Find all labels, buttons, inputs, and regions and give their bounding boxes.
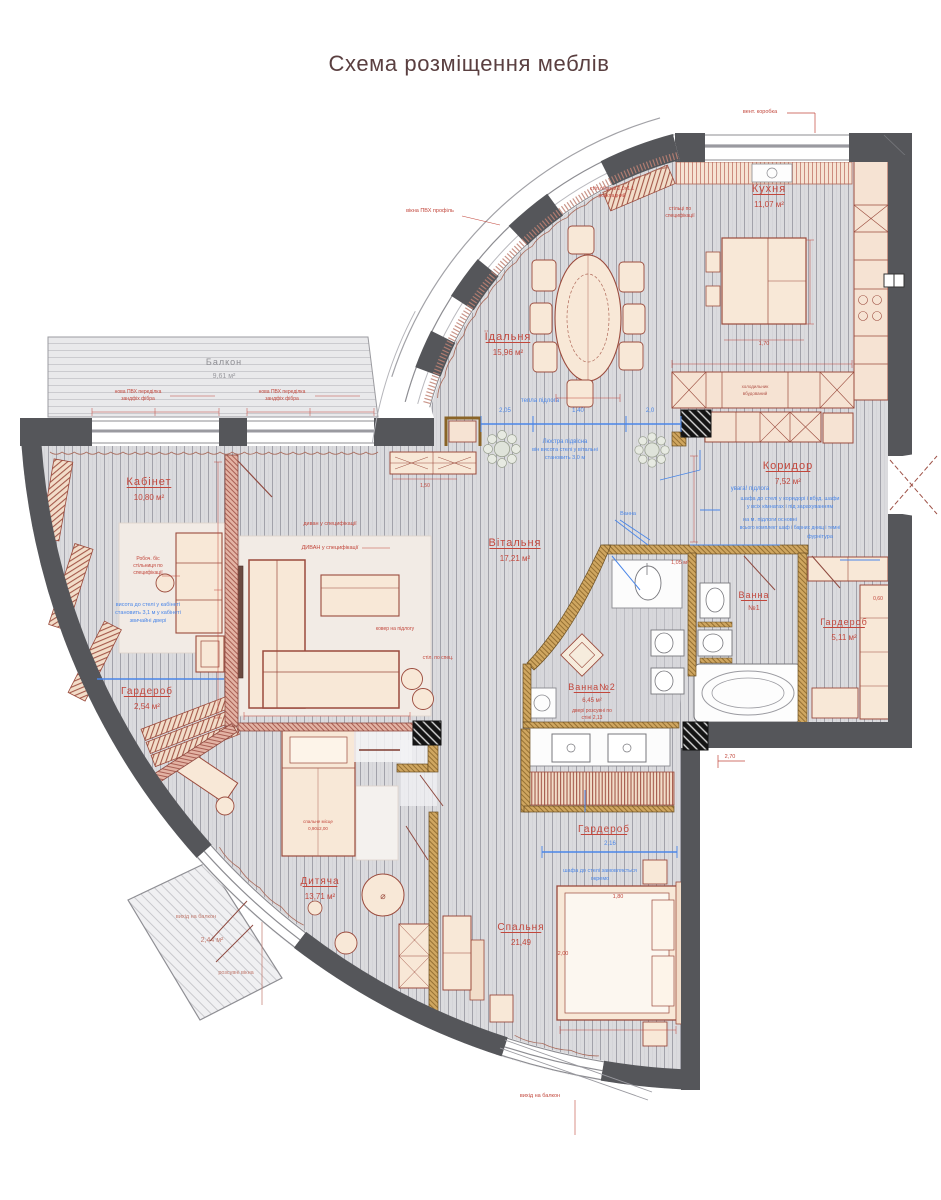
svg-text:холодильник: холодильник bbox=[742, 384, 769, 389]
svg-text:Їдальня: Їдальня bbox=[485, 331, 532, 343]
svg-text:0,60: 0,60 bbox=[873, 596, 883, 602]
svg-text:2,54 м²: 2,54 м² bbox=[134, 702, 160, 711]
svg-text:на м. підлоги основні: на м. підлоги основні bbox=[743, 517, 797, 523]
svg-text:Дитяча: Дитяча bbox=[300, 876, 339, 887]
svg-text:1,05 м²: 1,05 м² bbox=[671, 560, 689, 566]
svg-text:становить 3,1 м у кабінеті: становить 3,1 м у кабінеті bbox=[115, 610, 181, 616]
svg-text:Ванна№2: Ванна№2 bbox=[568, 682, 616, 692]
svg-text:2,16: 2,16 bbox=[604, 841, 616, 847]
svg-text:№1: №1 bbox=[748, 605, 760, 612]
svg-text:Гардероб: Гардероб bbox=[578, 823, 630, 835]
svg-text:увага! підлога: увага! підлога bbox=[731, 486, 770, 492]
svg-text:розкладний: розкладний bbox=[598, 192, 625, 199]
svg-text:1,40: 1,40 bbox=[572, 408, 584, 414]
svg-text:висота до стелі у кабінеті: висота до стелі у кабінеті bbox=[116, 602, 181, 608]
svg-text:1,70: 1,70 bbox=[759, 341, 770, 347]
svg-text:6,45 м²: 6,45 м² bbox=[582, 698, 601, 704]
svg-text:Ванна: Ванна bbox=[739, 590, 770, 600]
svg-text:Кабінет: Кабінет bbox=[126, 476, 171, 488]
svg-text:17,21 м²: 17,21 м² bbox=[500, 554, 531, 563]
svg-text:ковер на підлогу: ковер на підлогу bbox=[376, 626, 415, 632]
svg-text:стіні 2,13: стіні 2,13 bbox=[582, 715, 603, 721]
svg-text:стіл обідній 2,0х1,1: стіл обідній 2,0х1,1 bbox=[590, 185, 635, 192]
svg-text:специфікації: специфікації bbox=[665, 213, 695, 219]
svg-text:Спальня: Спальня bbox=[497, 922, 544, 933]
svg-text:він висота стелі у вітальні: він висота стелі у вітальні bbox=[532, 447, 598, 453]
svg-text:21,49: 21,49 bbox=[511, 938, 532, 947]
svg-text:⌀: ⌀ bbox=[380, 891, 386, 901]
svg-text:тепла підлога: тепла підлога bbox=[521, 398, 560, 404]
svg-text:нова ПВХ переділка: нова ПВХ переділка bbox=[115, 389, 162, 395]
svg-text:вент. коробка: вент. коробка bbox=[743, 109, 778, 115]
svg-text:шафа до стелі замовляється: шафа до стелі замовляється bbox=[563, 868, 637, 874]
svg-text:13,71 м²: 13,71 м² bbox=[305, 892, 336, 901]
svg-text:11,07 м²: 11,07 м² bbox=[754, 200, 784, 209]
svg-text:2,05: 2,05 bbox=[499, 408, 511, 414]
svg-text:звичайні двері: звичайні двері bbox=[130, 617, 167, 624]
svg-text:зандфіх фібра: зандфіх фібра bbox=[265, 396, 299, 402]
svg-text:Робоч. біс: Робоч. біс bbox=[136, 556, 160, 562]
svg-text:окремо: окремо bbox=[591, 876, 609, 882]
svg-text:стільниця по: стільниця по bbox=[133, 563, 163, 569]
svg-text:вікна ПВХ профіль: вікна ПВХ профіль bbox=[406, 208, 454, 214]
svg-text:всього комплект шаф і барних д: всього комплект шаф і барних днищ і темн… bbox=[740, 525, 841, 531]
svg-text:Схема розміщення меблів: Схема розміщення меблів bbox=[328, 51, 609, 76]
svg-text:Люстра підвісна: Люстра підвісна bbox=[543, 439, 588, 445]
svg-text:2,00: 2,00 bbox=[558, 951, 569, 957]
svg-text:0,90х2,00: 0,90х2,00 bbox=[308, 826, 328, 831]
svg-text:2,70: 2,70 bbox=[725, 754, 736, 760]
svg-text:Балкон: Балкон bbox=[206, 357, 242, 367]
svg-text:стільці по: стільці по bbox=[669, 206, 691, 212]
svg-text:стіл. по спец.: стіл. по спец. bbox=[423, 655, 454, 661]
svg-text:10,80 м²: 10,80 м² bbox=[134, 493, 165, 502]
svg-text:1,50: 1,50 bbox=[420, 483, 430, 489]
svg-text:розсувні вікна: розсувні вікна bbox=[218, 970, 254, 976]
svg-text:фурнітура: фурнітура bbox=[807, 534, 834, 540]
svg-text:Кухня: Кухня bbox=[752, 183, 786, 195]
svg-text:Гардероб: Гардероб bbox=[820, 617, 868, 627]
svg-text:вихід на балкон: вихід на балкон bbox=[520, 1093, 560, 1099]
svg-text:Ванна: Ванна bbox=[620, 511, 637, 517]
svg-text:нова ПВХ переділка: нова ПВХ переділка bbox=[259, 389, 306, 395]
svg-text:вбудований: вбудований bbox=[743, 390, 768, 396]
svg-text:Вітальня: Вітальня bbox=[489, 537, 542, 549]
svg-text:шафа до стелі у коридорі і вбу: шафа до стелі у коридорі і вбуд. шафи bbox=[741, 496, 840, 502]
svg-text:5,11 м²: 5,11 м² bbox=[831, 633, 857, 642]
svg-text:15,96 м²: 15,96 м² bbox=[493, 348, 524, 357]
svg-text:зандфіх фібра: зандфіх фібра bbox=[121, 396, 155, 402]
svg-text:у всіх кімнатах і під зарахува: у всіх кімнатах і під зарахуванням bbox=[747, 504, 833, 510]
svg-text:7,52 м²: 7,52 м² bbox=[775, 477, 801, 486]
svg-text:диван у специфікації: диван у специфікації bbox=[303, 521, 357, 527]
svg-text:двері розсувні по: двері розсувні по bbox=[572, 708, 612, 714]
svg-text:2,0: 2,0 bbox=[646, 408, 655, 414]
svg-text:специфікації: специфікації bbox=[133, 570, 163, 576]
svg-text:ДИВАН у специфікації: ДИВАН у специфікації bbox=[302, 545, 359, 551]
svg-text:1,80: 1,80 bbox=[613, 894, 624, 900]
svg-text:9,61 м²: 9,61 м² bbox=[213, 373, 236, 380]
svg-text:Гардероб: Гардероб bbox=[121, 685, 173, 697]
svg-text:становить 3,0 м: становить 3,0 м bbox=[545, 455, 585, 461]
svg-text:вихід на балкон: вихід на балкон bbox=[176, 914, 216, 920]
svg-text:Коридор: Коридор bbox=[763, 460, 813, 472]
svg-text:спальне місце: спальне місце bbox=[303, 819, 333, 824]
